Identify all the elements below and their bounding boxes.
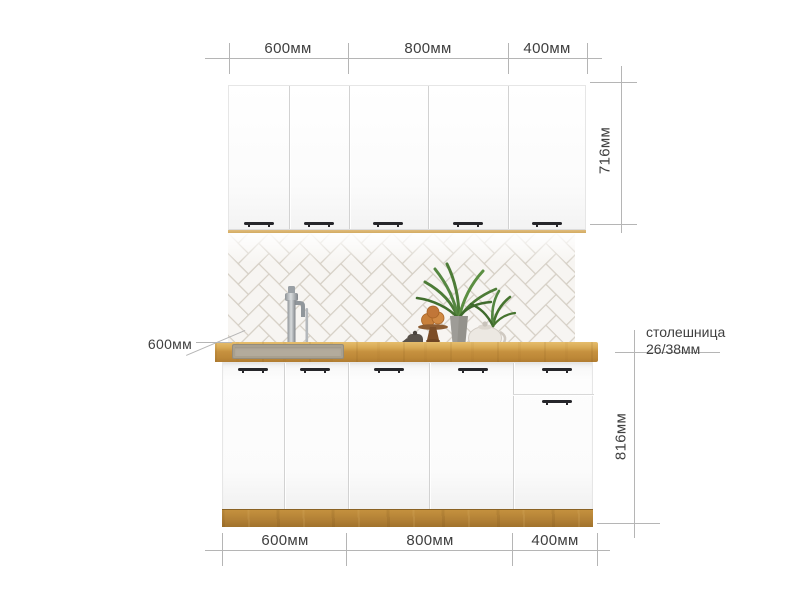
plinth <box>222 509 593 527</box>
drawer-divider <box>513 394 594 395</box>
dim-bottom-line <box>205 550 610 551</box>
cabinet-handle <box>300 368 330 371</box>
dim-bottom-tick <box>222 533 223 566</box>
worktop-note-title: столешница <box>646 324 725 340</box>
sink <box>232 344 344 359</box>
cabinet-handle <box>532 222 562 225</box>
cabinet-handle <box>244 222 274 225</box>
dim-816-line <box>634 330 635 538</box>
upper-cabinet-bottom-edge <box>228 230 586 233</box>
dim-bottom-tick <box>597 533 598 566</box>
door-gap <box>508 86 509 229</box>
door-gap <box>429 363 430 509</box>
door-gap <box>348 363 349 509</box>
cabinet-handle <box>542 400 572 403</box>
door-gap <box>349 86 350 229</box>
worktop-note-thickness: 26/38мм <box>646 341 700 357</box>
dim-bottom-800: 800мм <box>390 532 470 549</box>
dim-base-height: 816мм <box>613 406 630 468</box>
dim-top-400: 400мм <box>507 40 587 57</box>
dim-716-line <box>621 66 622 233</box>
base-cabinets <box>222 362 593 510</box>
dim-top-tick <box>229 43 230 74</box>
dim-top-800: 800мм <box>388 40 468 57</box>
upper-cabinets <box>228 85 586 230</box>
drawer-handle <box>542 368 572 371</box>
dim-bottom-tick <box>346 533 347 566</box>
countertop-decor <box>395 256 520 352</box>
door-gap <box>289 86 290 229</box>
dim-upper-height: 716мм <box>597 120 614 182</box>
dim-top-600: 600мм <box>248 40 328 57</box>
faucet <box>278 262 323 350</box>
dim-716-tick <box>590 224 637 225</box>
cabinet-handle <box>374 368 404 371</box>
dim-worktop-depth: 600мм <box>138 336 192 352</box>
dim-716-tick <box>590 82 637 83</box>
dim-816-tick <box>597 523 660 524</box>
door-gap <box>284 363 285 509</box>
cabinet-handle <box>453 222 483 225</box>
cabinet-handle <box>238 368 268 371</box>
dim-bottom-600: 600мм <box>245 532 325 549</box>
dim-bottom-400: 400мм <box>515 532 595 549</box>
cabinet-handle <box>373 222 403 225</box>
cabinet-handle <box>304 222 334 225</box>
kitchen-dimension-diagram: 600мм 800мм 400мм 716мм 816мм столешница… <box>0 0 800 600</box>
door-gap <box>513 363 514 509</box>
dim-top-tick <box>348 43 349 74</box>
cabinet-handle <box>458 368 488 371</box>
door-gap <box>428 86 429 229</box>
dim-top-tick <box>587 43 588 74</box>
dim-bottom-tick <box>512 533 513 566</box>
dim-top-line <box>205 58 602 59</box>
